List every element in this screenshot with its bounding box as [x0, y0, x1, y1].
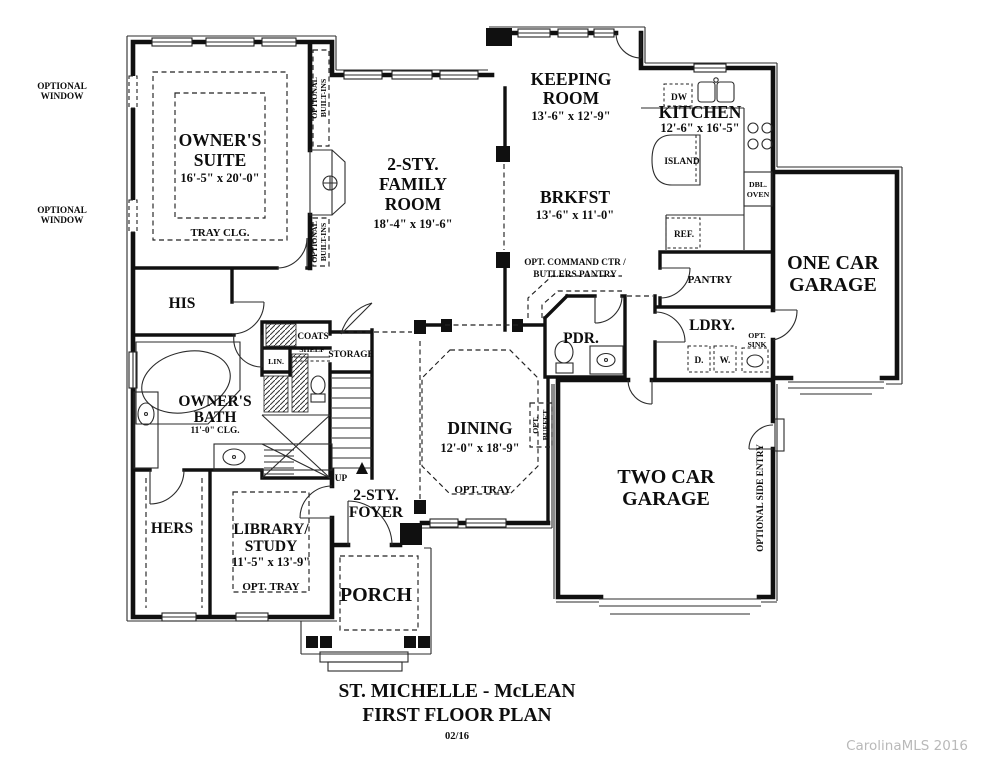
owners-suite-label: OWNER'S	[179, 130, 262, 150]
storage-label: STORAGE	[328, 350, 373, 360]
dining-opt-tray: OPT. TRAY	[454, 484, 511, 496]
owners-suite-note: TRAY CLG.	[190, 227, 249, 239]
owners-bath-note: 11'-0" CLG.	[190, 426, 239, 436]
pantry-label: PANTRY	[688, 274, 733, 286]
coats-label: COATS	[297, 332, 328, 342]
library-label2: STUDY	[245, 538, 298, 555]
optional-window-2	[129, 200, 137, 232]
foyer-label: 2-STY.	[353, 487, 399, 504]
optional-window-label1a: OPTIONAL	[37, 82, 87, 92]
watermark: CarolinaMLS 2016	[846, 738, 968, 754]
opt-sink-label1: OPT.	[748, 331, 765, 340]
foyer-label2: FOYER	[349, 504, 404, 521]
optional-window-label2a: OPTIONAL	[37, 206, 87, 216]
owners-bath-label: OWNER'S	[178, 393, 251, 410]
pdr-vanity	[590, 346, 623, 374]
dryer-label: D.	[694, 356, 703, 366]
one-car-garage-label: ONE CAR	[787, 252, 879, 274]
his-closet-label: HIS	[169, 295, 196, 312]
family-room-label: 2-STY.	[387, 154, 438, 174]
brkfst-label: BRKFST	[540, 187, 610, 207]
two-car-garage-label2: GARAGE	[622, 488, 710, 510]
floor-plan-drawing: OWNER'S SUITE 16'-5" x 20'-0" TRAY CLG. …	[0, 0, 995, 768]
kitchen-sink	[698, 78, 734, 102]
optional-builtins-label1a: OPTIONAL	[310, 77, 319, 119]
up-label: UP	[335, 474, 348, 484]
opt-sink-label2: SINK	[747, 340, 766, 349]
optional-builtins-label2a: OPTIONAL	[310, 221, 319, 263]
shelf-label: SHELF	[299, 345, 325, 354]
family-room-label2: FAMILY	[379, 174, 447, 194]
one-car-garage-label2: GARAGE	[789, 274, 877, 296]
optional-window-label2b: WINDOW	[41, 216, 85, 226]
optional-builtins-label2b: BUILT-INS	[319, 223, 328, 261]
washer-label: W.	[720, 356, 731, 366]
owners-bath-label2: BATH	[194, 409, 237, 426]
keeping-room-dims: 13'-6" x 12'-9"	[531, 109, 610, 123]
laundry-label: LDRY.	[689, 317, 735, 334]
plan-date: 02/16	[445, 731, 469, 742]
title-block: ST. MICHELLE - McLEAN FIRST FLOOR PLAN 0…	[339, 681, 576, 742]
command-ctr-label1: OPT. COMMAND CTR /	[524, 258, 626, 268]
ref-label: REF.	[674, 230, 694, 240]
side-entry-label: OPTIONAL SIDE ENTRY	[756, 444, 766, 552]
owners-suite-label2: SUITE	[194, 150, 247, 170]
fireplace	[310, 150, 345, 215]
optional-window-label1b: WINDOW	[41, 92, 85, 102]
porch-label: PORCH	[340, 584, 413, 606]
two-car-garage-label: TWO CAR	[617, 466, 715, 488]
room-labels: OWNER'S SUITE 16'-5" x 20'-0" TRAY CLG. …	[151, 69, 880, 606]
family-room-dims: 18'-4" x 19'-6"	[373, 217, 452, 231]
optional-window-1	[129, 76, 137, 108]
dbl-oven-label1: DBL.	[749, 180, 767, 189]
plan-title: ST. MICHELLE - McLEAN	[339, 681, 576, 702]
plan-subtitle: FIRST FLOOR PLAN	[362, 705, 551, 726]
library-opt-tray: OPT. TRAY	[242, 581, 299, 593]
wc-toilet	[311, 376, 325, 394]
island-label: ISLAND	[664, 157, 699, 167]
keeping-room-label2: ROOM	[543, 88, 600, 108]
bath-vanity-bottom	[214, 444, 332, 470]
dishwasher-label: DW	[671, 93, 688, 103]
double-oven	[744, 172, 772, 206]
kitchen-dims: 12'-6" x 16'-5"	[660, 121, 739, 135]
library-dims: 11'-5" x 13'-9"	[232, 555, 310, 569]
porch-steps	[320, 652, 408, 671]
floor-plan-sheet: OWNER'S SUITE 16'-5" x 20'-0" TRAY CLG. …	[0, 0, 995, 768]
dining-label: DINING	[447, 418, 513, 438]
hers-closet-label: HERS	[151, 520, 193, 537]
opt-buffet-label1: OPT.	[531, 416, 540, 433]
kitchen-label: KITCHEN	[659, 102, 742, 122]
powder-room-label: PDR.	[563, 330, 599, 347]
family-room-label3: ROOM	[385, 194, 442, 214]
command-ctr-label2: BUTLERS PANTRY	[533, 270, 617, 280]
owners-suite-dims: 16'-5" x 20'-0"	[180, 171, 259, 185]
dbl-oven-label2: OVEN	[747, 190, 770, 199]
opt-sink-box	[742, 348, 768, 372]
brkfst-dims: 13'-6" x 11'-0"	[536, 208, 614, 222]
optional-builtins-label1b: BUILT-INS	[319, 79, 328, 117]
column-posts	[306, 28, 523, 648]
linen-label: LIN.	[268, 357, 284, 366]
library-label: LIBRARY/	[233, 521, 309, 538]
opt-buffet-label2: BUFFET	[541, 409, 550, 441]
keeping-room-label: KEEPING	[531, 69, 612, 89]
dining-dims: 12'-0" x 18'-9"	[440, 441, 519, 455]
cooktop	[748, 123, 772, 149]
